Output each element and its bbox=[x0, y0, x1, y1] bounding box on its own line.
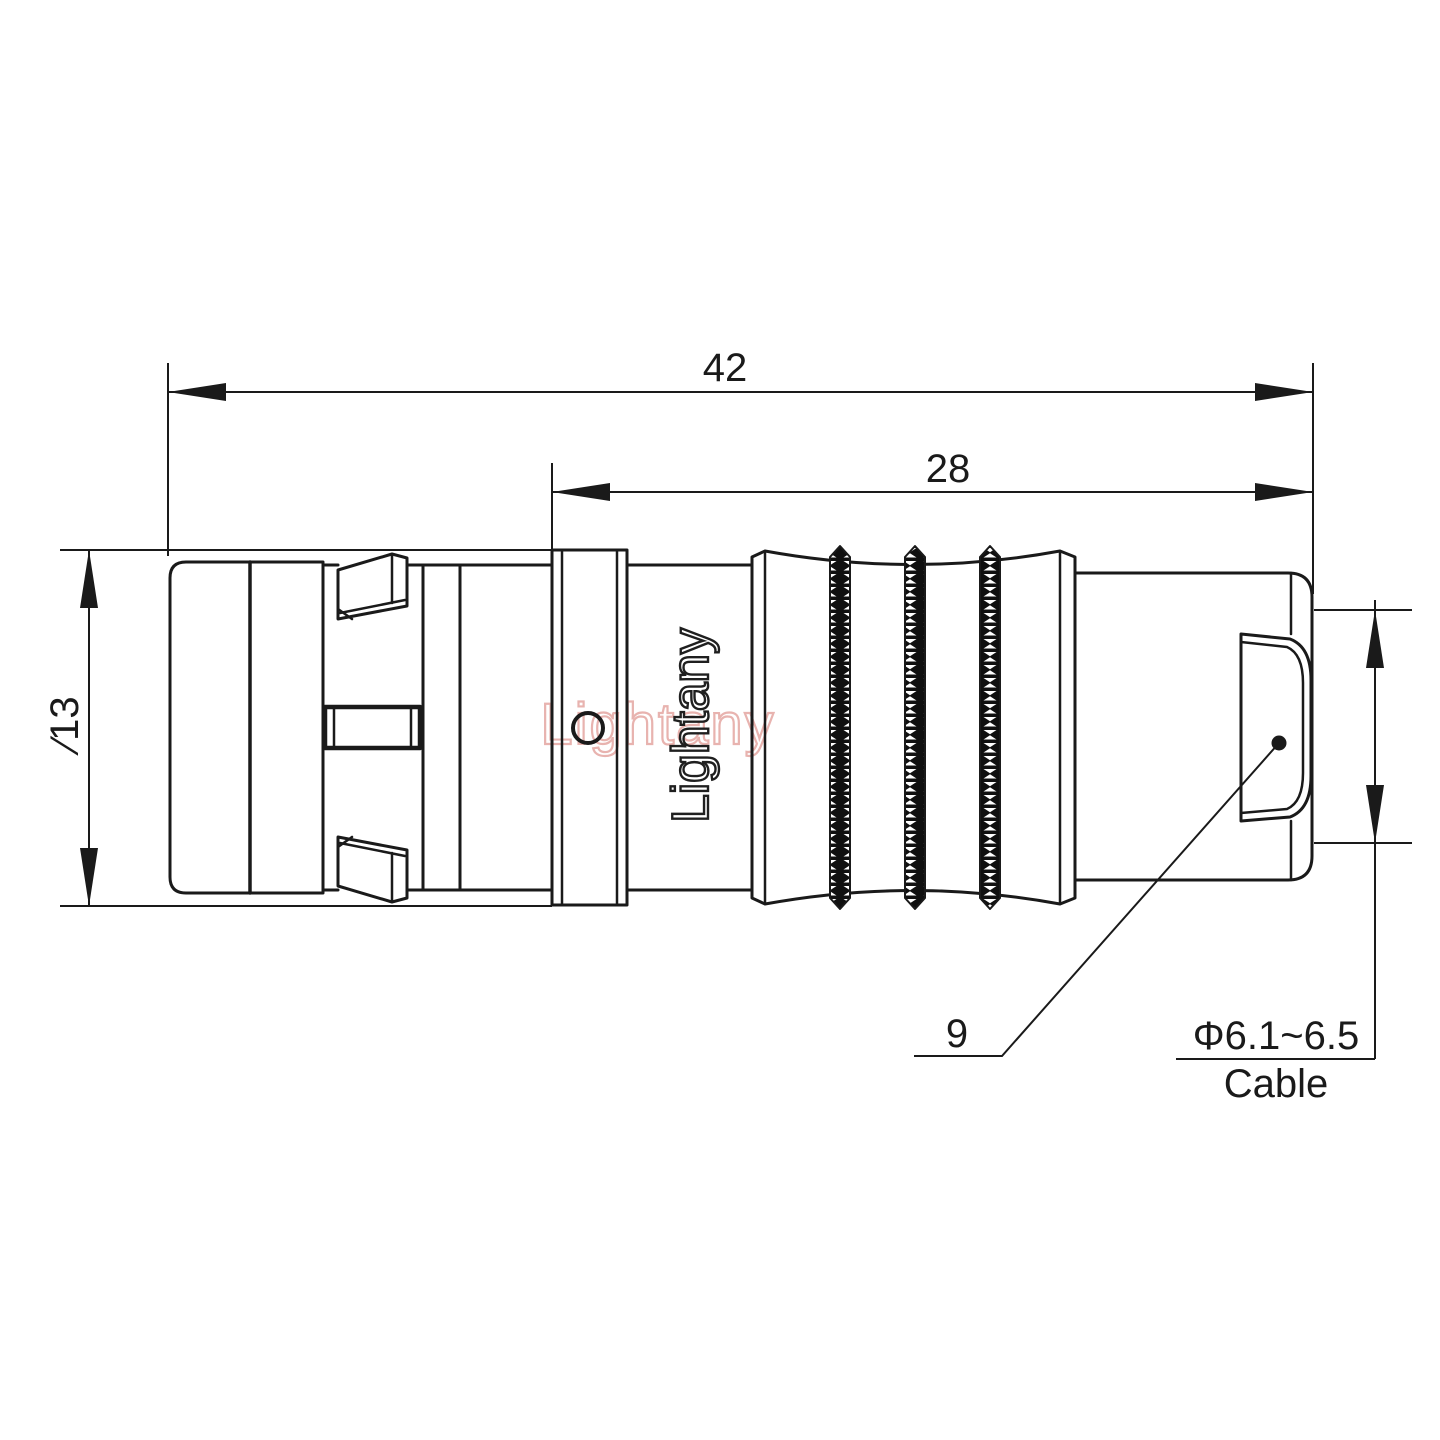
technical-drawing-page: Lightany bbox=[0, 0, 1440, 1440]
knurl-band-2 bbox=[905, 546, 925, 909]
cable-note-diameter: Φ6.1~6.5 bbox=[1193, 1014, 1359, 1058]
leader-9-label: 9 bbox=[946, 1012, 968, 1056]
dim-42-label: 42 bbox=[703, 346, 748, 390]
knurl-band-3 bbox=[980, 546, 1000, 909]
brand-text: Lightany bbox=[662, 628, 720, 823]
knurl-band-1 bbox=[830, 546, 850, 909]
cable-note-word: Cable bbox=[1224, 1062, 1329, 1106]
dim-13-label: ∕13 bbox=[43, 696, 87, 756]
dim-28-label: 28 bbox=[926, 447, 971, 491]
watermark-text: Lightany bbox=[540, 692, 775, 757]
connector-drawing-canvas: Lightany bbox=[0, 0, 1440, 1440]
